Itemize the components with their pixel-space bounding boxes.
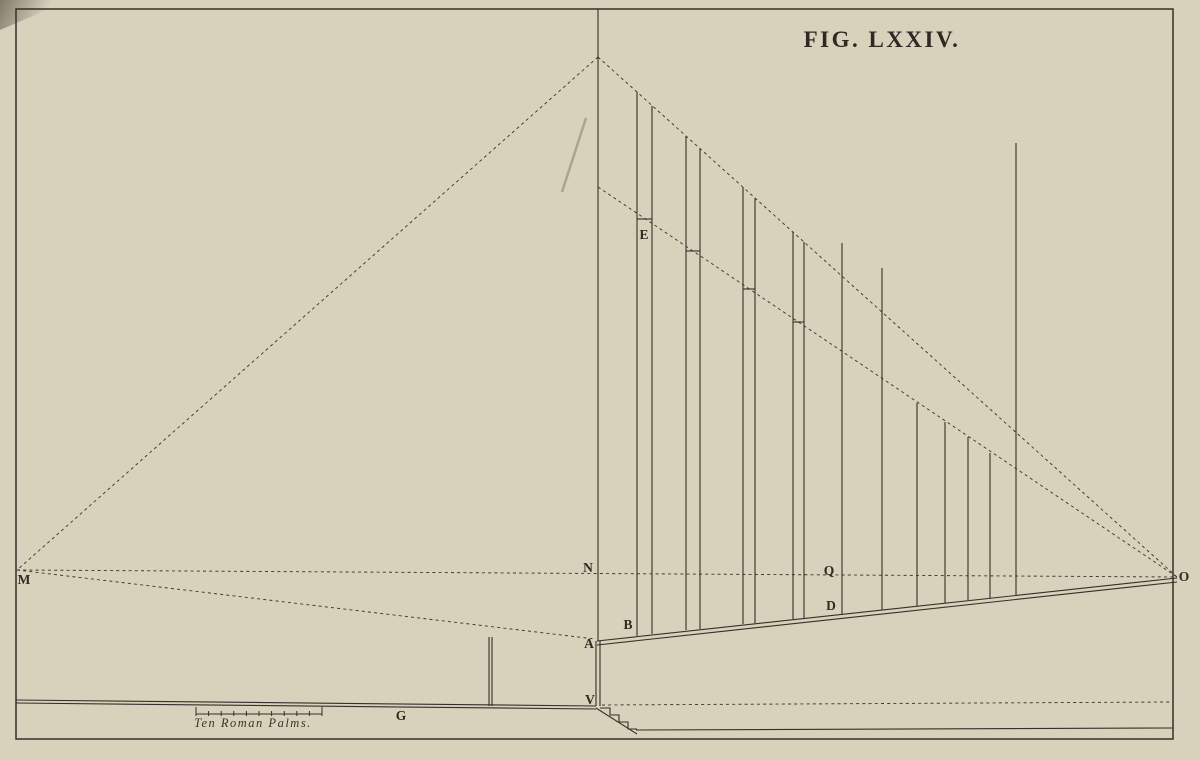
scale-bar — [196, 707, 322, 716]
figure-label-B: B — [623, 617, 632, 632]
construction-lines — [16, 9, 1177, 734]
inclined-ground-lower — [597, 582, 1177, 645]
steps-at-v — [600, 708, 637, 729]
ray-apex-to-m — [17, 57, 598, 570]
figure-lxxiv-diagram: MNOQBADVEG FIG. LXXIV. Ten Roman Palms. — [0, 0, 1200, 760]
figure-label-V: V — [585, 692, 595, 707]
steps-diagonal — [596, 708, 637, 734]
scan-artifacts — [562, 118, 586, 192]
figure-title: FIG. LXXIV. — [804, 27, 961, 52]
plate-border — [16, 9, 1173, 739]
pavement-dashed-right — [602, 702, 1170, 705]
figure-label-E: E — [639, 227, 648, 242]
scanned-plate-page: MNOQBADVEG FIG. LXXIV. Ten Roman Palms. — [0, 0, 1200, 760]
inclined-ground-upper — [597, 578, 1177, 641]
figure-label-N: N — [583, 560, 593, 575]
figure-label-Q: Q — [824, 563, 835, 578]
lower-pavement-right — [636, 728, 1173, 730]
pavement-left-upper — [16, 700, 596, 706]
figure-label-M: M — [18, 572, 31, 587]
scale-bar-label: Ten Roman Palms. — [194, 716, 312, 730]
horizon-m-to-o — [17, 570, 1177, 577]
column-lines — [637, 92, 1016, 636]
scan-smudge — [562, 118, 586, 192]
ray-e-to-o — [598, 187, 1177, 577]
steps-outline — [600, 708, 637, 729]
figure-label-A: A — [584, 636, 594, 651]
figure-letter-labels: MNOQBADVEG — [18, 227, 1190, 723]
figure-label-O: O — [1179, 569, 1190, 584]
ray-apex-to-o — [598, 57, 1177, 577]
figure-label-G: G — [396, 708, 407, 723]
ray-m-to-a — [17, 570, 595, 639]
figure-label-D: D — [826, 598, 836, 613]
pavement-left-lower — [16, 703, 596, 709]
